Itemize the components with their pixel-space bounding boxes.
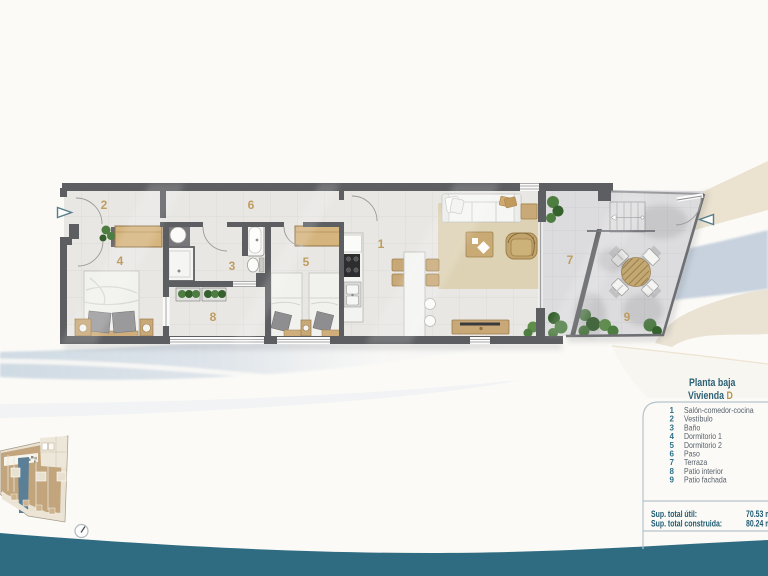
svg-text:Vivienda D: Vivienda D xyxy=(688,390,733,402)
svg-text:2: 2 xyxy=(101,198,108,212)
svg-text:9: 9 xyxy=(624,310,631,324)
svg-text:1: 1 xyxy=(670,406,675,415)
svg-text:Sup. total construida:: Sup. total construida: xyxy=(651,517,722,528)
svg-text:2: 2 xyxy=(670,415,675,424)
svg-text:Planta baja: Planta baja xyxy=(689,377,736,389)
svg-text:5: 5 xyxy=(670,441,675,450)
svg-text:9: 9 xyxy=(670,476,675,485)
svg-text:80.24 m²: 80.24 m² xyxy=(746,517,768,528)
svg-text:4: 4 xyxy=(117,254,124,268)
svg-text:4: 4 xyxy=(670,432,675,441)
svg-text:7: 7 xyxy=(567,253,574,267)
svg-text:3: 3 xyxy=(229,259,236,273)
svg-text:1: 1 xyxy=(378,237,385,251)
svg-text:Patio fachada: Patio fachada xyxy=(684,475,727,485)
svg-text:7: 7 xyxy=(670,458,675,467)
svg-text:6: 6 xyxy=(248,198,255,212)
svg-text:6: 6 xyxy=(670,450,675,459)
svg-text:8: 8 xyxy=(670,467,675,476)
svg-text:8: 8 xyxy=(210,310,217,324)
svg-text:3: 3 xyxy=(670,423,675,432)
svg-text:5: 5 xyxy=(303,255,310,269)
